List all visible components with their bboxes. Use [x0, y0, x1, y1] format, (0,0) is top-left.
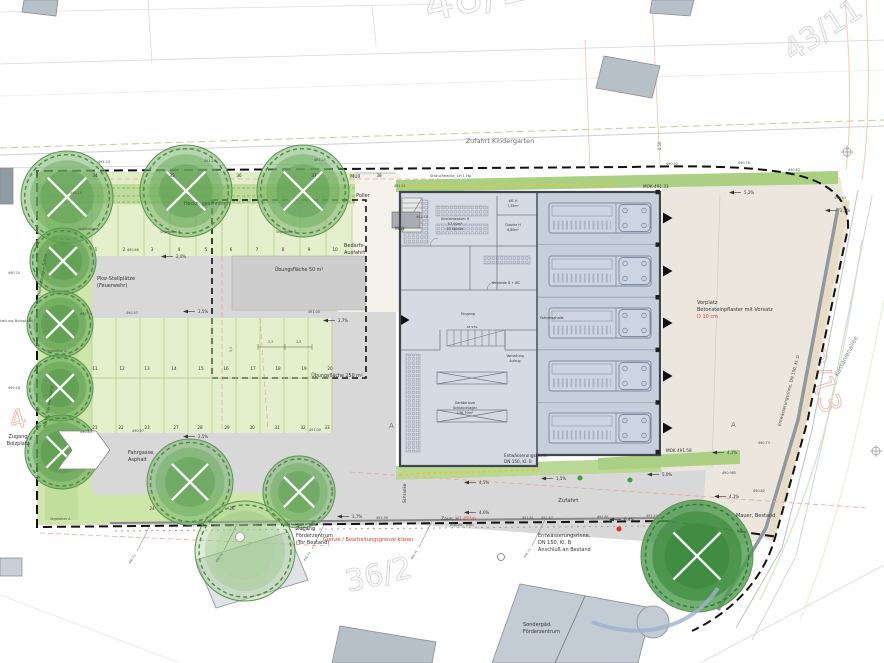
pkw-stellplaetze-2: (Feuerwehr) [97, 283, 127, 289]
stall-number: 31 [274, 425, 280, 430]
bedarfsausfahrt-2: Ausfahrt [344, 250, 365, 256]
room-geraeteraum-2: Schlauchlager [453, 406, 478, 410]
stall-number: 28 [197, 425, 203, 430]
spot-elevation: 491.00 [308, 310, 320, 314]
spot-elevation: 491.39 [376, 516, 388, 520]
column-square [656, 400, 661, 405]
spot-elevation: 491.47 [646, 514, 658, 518]
lockers-block-2 [436, 206, 488, 216]
room-umkleideraum-1: Umkleideraum H [441, 217, 470, 221]
mok-491-33: MOK 491.33 [643, 184, 669, 189]
room-umkleide-d: Umkleide D + WC [492, 281, 521, 285]
slope-label: 2,5% [198, 434, 208, 439]
room-wc-1: WC H [509, 199, 518, 203]
stall-number: 27 [173, 425, 179, 430]
vegetation-a-1: Vegetation A [46, 349, 67, 353]
shelf-strip [406, 354, 420, 452]
spot-elevation: 490.82 [753, 489, 765, 493]
spot-elevation: 490.73 [758, 441, 770, 445]
vegetation-b-1: Vegetation B [78, 227, 98, 231]
spot-elevation: 490.15 [70, 191, 82, 195]
stall-number: 37 [311, 173, 317, 178]
spot-elevation: 491.25 [314, 158, 326, 162]
room-fahrzeughalle: Fahrzeughalle [540, 316, 564, 320]
slope-label: 2,0% [176, 254, 186, 259]
sonderpaed-2: Förderzentrum [523, 629, 560, 635]
pkw-stellplaetze-1: Pkw-Stellplätze [97, 276, 135, 282]
room-geraeteraum-3: 136,70m² [457, 411, 474, 415]
column-square [656, 295, 661, 300]
mok-491-58: MOK 491.58 [666, 448, 692, 453]
mauer-bestand: Mauer, Bestand [736, 513, 775, 519]
entw-rinne-bestand-1: Entwässerungsrinne, [538, 533, 591, 539]
stall-number: 20 [327, 366, 333, 371]
spot-elevation: 490.44 [80, 430, 92, 434]
column-square [656, 190, 661, 195]
spot-elevation: 491.81 [597, 515, 609, 519]
spot-elevation: 490.68 [127, 248, 139, 252]
stall-number: 32 [300, 425, 306, 430]
spot-elevation: 490.92 [666, 162, 678, 166]
zugang-foerderzentrum-1: Zugang [296, 526, 315, 532]
spot-elevation: 491.21 [394, 184, 406, 188]
zugang-bolzplatz-2: Bolzplatz [7, 441, 30, 447]
slope-label: 4,1% [727, 450, 737, 455]
poller: Poller [356, 193, 371, 199]
room-vorhaltung-2: Aufzug [509, 359, 520, 363]
dim-5-0: 5,0 [229, 347, 233, 352]
stall-number: 29 [224, 425, 230, 430]
stall-number: 16 [223, 366, 229, 371]
stall-number: 35 [169, 173, 175, 178]
stall-number: 34 [92, 173, 98, 178]
entw-rinne-bestand-3: Anschluß an Bestand [538, 547, 591, 553]
stall-number: 19 [301, 366, 307, 371]
spot-elevation: 490.57 [126, 311, 138, 315]
muell-top: Müll [350, 174, 360, 180]
room-geraeteraum-1: Geräteraum [455, 401, 476, 405]
dim-2-5-b: 2,5 [296, 340, 301, 344]
entw-rinne-geb-2: DN 150, Kl. B [504, 459, 532, 464]
stall-number: 9 [308, 247, 311, 252]
planting-dot-1 [578, 476, 583, 481]
stall-number: 6 [230, 247, 233, 252]
uebungsflaeche-50-pad [232, 256, 366, 310]
spot-elevation: 490.20 [8, 271, 20, 275]
slope-label: 2,5% [840, 208, 850, 213]
room-wc-2: 7,35m² [507, 204, 519, 208]
slope-label: 4,1% [729, 494, 739, 499]
stall-number: 30 [249, 425, 255, 430]
site-plan-drawing: 48/1843/1136/243/134 [0, 0, 884, 663]
pflanzstreifen: Strauchhecke, LH 1 Hp [430, 174, 472, 178]
slope-label: 6,4% [624, 517, 634, 522]
section-a-left: A [389, 422, 394, 430]
entw-rinne-bestand-2: DN 150, Kl. B [538, 540, 572, 546]
bedarfsausfahrt-1: Bedarfs- [344, 243, 365, 249]
room-eingang: Eingang [461, 312, 475, 316]
survey-point-dot [236, 533, 245, 542]
zaun-h: Zaun, H [441, 516, 459, 522]
zufahrt: Zufahrt [558, 498, 579, 504]
manhole [498, 554, 505, 561]
planting-dot-2 [628, 478, 633, 483]
feuerwehrhaus-building [392, 190, 673, 466]
room-dusche-2: 8,80m² [507, 228, 519, 232]
stall-number: 36 [236, 173, 242, 178]
slope-label: 5,0% [662, 472, 672, 477]
room-treppe: 18 STG [467, 325, 479, 329]
slope-label: 5,2% [744, 190, 754, 195]
stall-number: 18 [275, 366, 281, 371]
fire-truck [549, 256, 651, 286]
spot-elevation: 490.44 [80, 312, 92, 316]
stall-number: 22 [118, 425, 124, 430]
site-plan-stage: 48/1843/1136/243/134 [0, 0, 884, 663]
stall-number: 21 [92, 425, 98, 430]
existing-building-bottom-edge [0, 558, 22, 576]
stall-number: 38 [376, 173, 382, 178]
tree [195, 501, 295, 601]
stall-number: 12 [119, 366, 125, 371]
bolzplatz-edge: nstellung Bolzplatz) [0, 318, 34, 323]
tree [257, 145, 349, 237]
uebungsflaeche-250: Übungsfläche 250 m² [311, 372, 363, 379]
stall-number: 15 [198, 366, 204, 371]
stall-number: 3 [151, 247, 154, 252]
room-vorhaltung-1: Vorhaltung [506, 354, 523, 358]
slope-label: 1,5% [556, 476, 566, 481]
spot-elevation: 490.63 [788, 168, 800, 172]
sonderpaed-1: Sonderpäd. [523, 622, 552, 628]
fahrgasse-2: Asphalt [128, 457, 147, 463]
room-dusche-1: Dusche H [505, 223, 521, 227]
uebungsflaeche-50: Übungsfläche 50 m² [275, 266, 324, 273]
existing-building-top-right [650, 0, 694, 16]
spot-elevation: 491.67 [541, 516, 553, 520]
fire-truck [549, 203, 651, 233]
stall-number: 13 [144, 366, 150, 371]
schranke: Schranke [402, 483, 407, 503]
red-marker-dot [617, 527, 622, 532]
grenze-klaeren: Grenze / Bearbeitungsgrenze klären [323, 537, 413, 543]
stall-number: 5 [205, 247, 208, 252]
spot-elevation: 491.15 [416, 215, 428, 219]
stall-number: 1 [95, 247, 98, 252]
tree [140, 145, 232, 237]
spot-elevation: 491.20 [204, 159, 216, 163]
foerderzentrum-bump [637, 606, 669, 638]
vegetation-b-3: Vegetation B [276, 230, 296, 234]
stall-number: 11 [92, 366, 98, 371]
fire-truck [549, 361, 651, 391]
room-umkleideraum-3: 40 Spinde [446, 227, 463, 231]
tree [27, 355, 93, 421]
zaun-mass: 1,47?m [459, 516, 476, 522]
spot-elevation: 490.57 [132, 429, 144, 433]
slope-label: 1,7% [352, 514, 362, 519]
tree-canopy-inner [216, 522, 274, 580]
spot-elevation: 491.23 [98, 160, 110, 164]
vorplatz-1: Vorplatz [697, 300, 718, 306]
column-square [656, 450, 661, 455]
zufahrt-kindergarten: Zufahrt Kindergarten [466, 137, 535, 145]
column-square [656, 348, 661, 353]
dim-2-5-a: 2,5 [268, 340, 273, 344]
fire-truck [549, 413, 651, 443]
stall-number: 14 [171, 366, 177, 371]
spot-elevation: 490.76 [738, 161, 750, 165]
vegetation-a-2: Vegetation A [50, 517, 71, 521]
mauer-neu: Mauer, neu [450, 522, 474, 527]
hecke-geschnitten: Hecke, geschnitten [184, 201, 230, 207]
spot-elevation: 491.00 [309, 428, 321, 432]
slope-label: 4,5% [479, 480, 489, 485]
stall-number: 2 [123, 247, 126, 252]
spot-elevation: 490.18 [8, 386, 20, 390]
stall-number: 10 [332, 247, 338, 252]
stall-number: 4 [178, 247, 181, 252]
vegetation-b-2: Vegetation B [160, 230, 180, 234]
spot-elevation: 490.985 [722, 471, 736, 475]
muell-building: Müll [395, 226, 404, 232]
stall-number: 24 [149, 506, 155, 511]
fire-truck [549, 308, 651, 338]
room-umkleideraum-2: 57,00m² [448, 222, 463, 226]
existing-building-left-edge [0, 168, 13, 204]
stall-number: 17 [250, 366, 256, 371]
slope-label: 2,5% [198, 309, 208, 314]
lockers-block-4 [484, 256, 530, 264]
stall-number: 23 [144, 425, 150, 430]
vorplatz-2: Betonsteinpflaster mit Vorsatz [697, 307, 773, 313]
dim-4-50: 4,50 [657, 141, 662, 150]
zugang-bolzplatz-1: Zugang [8, 434, 27, 440]
tree [27, 291, 93, 357]
column-square [656, 242, 661, 247]
stall-number: 7 [256, 247, 259, 252]
stall-number: 26 [229, 506, 235, 511]
vorplatz-3: D 10 cm [697, 314, 718, 320]
section-a-right: A [731, 421, 736, 429]
stall-number: 33 [324, 425, 330, 430]
slope-label: 4,6% [479, 510, 489, 515]
fahrgasse-1: Fahrgasse, [128, 450, 155, 456]
entw-rinne-geb-1: Entwässerungsrinne, [504, 453, 548, 458]
spot-elevation: 491.61 [522, 516, 534, 520]
slope-label: 2,7% [338, 318, 348, 323]
stall-number: 8 [282, 247, 285, 252]
spot-elevation: 490.54 [834, 196, 846, 200]
